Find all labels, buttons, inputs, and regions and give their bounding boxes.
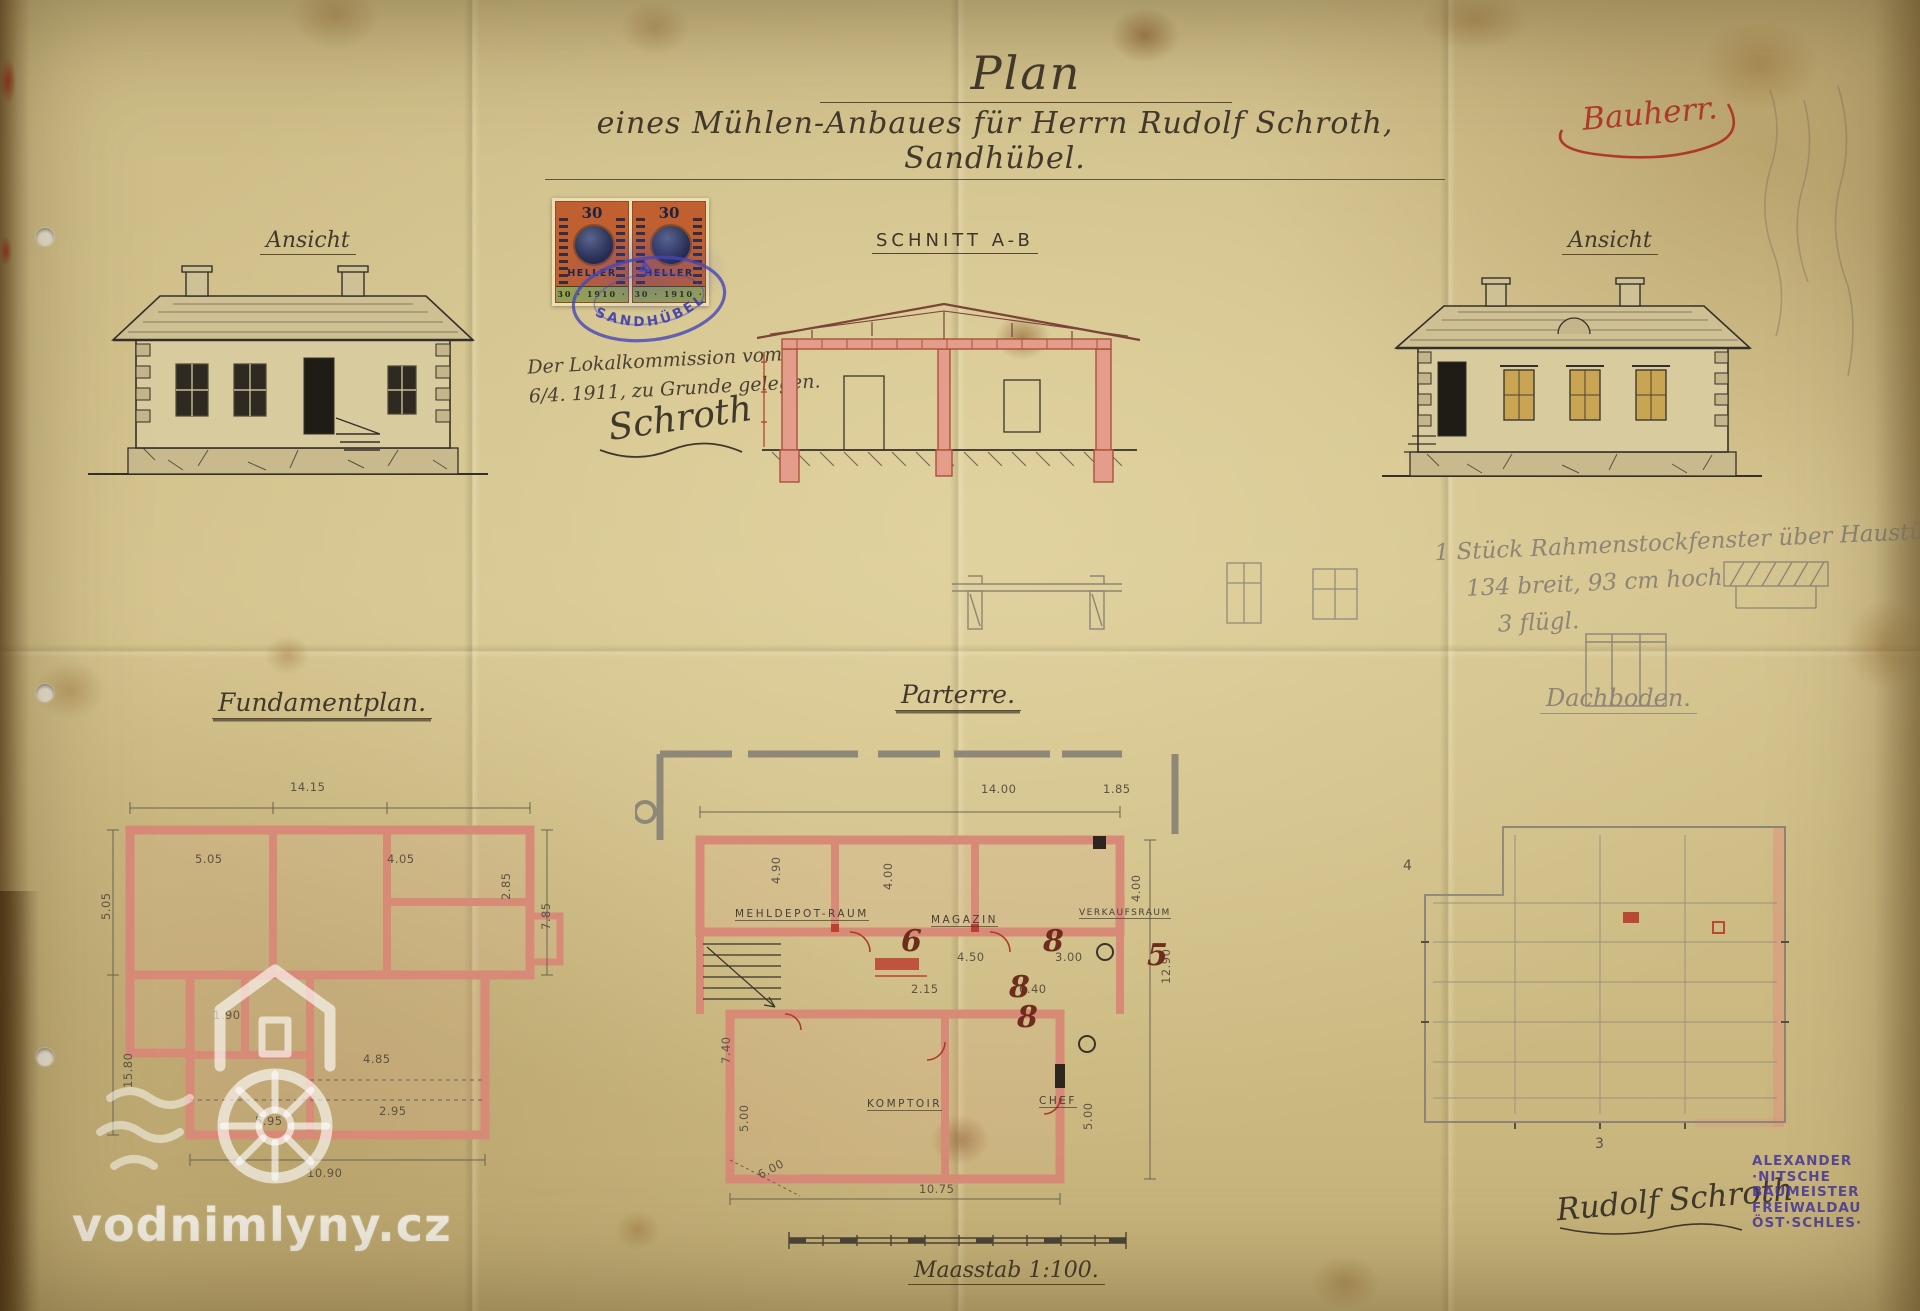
page-title: Plan (820, 46, 1232, 103)
maker-stamp-line: FREIWALDAU (1752, 1201, 1862, 1217)
dim-label: 5.00 (737, 1104, 751, 1132)
dim-label: 4.05 (387, 852, 415, 866)
watermark-text: vodnimlyny.cz (72, 1198, 452, 1252)
correction-figure: 6 (901, 924, 922, 959)
maker-stamp-line: ·NITSCHE (1752, 1170, 1862, 1186)
paper-stain (620, 0, 690, 55)
dim-label: 10.75 (919, 1182, 954, 1196)
postmark-sandhubel: SANDHÜBEL (559, 240, 740, 358)
punch-hole (36, 1048, 54, 1066)
room-label-verkauf: VERKAUFSRAUM (1079, 908, 1171, 919)
paper-stain (290, 0, 380, 50)
red-edge-mark (0, 58, 16, 104)
left-elevation-drawing (88, 262, 488, 492)
room-label-magazin: MAGAZIN (931, 914, 998, 927)
dim-label: 5.00 (1081, 1102, 1095, 1130)
dim-label: 4.00 (881, 862, 895, 890)
watermark-mill-logo-icon (90, 948, 400, 1198)
attic-plan-drawing: 4 3 (1395, 772, 1795, 1167)
room-label-chef: CHEF (1039, 1095, 1077, 1108)
dim-label: 2.15 (911, 982, 939, 996)
attic-mark-left: 4 (1403, 858, 1412, 874)
pencil-beam-sketch (950, 556, 1125, 641)
pencil-lintel-sketch (1720, 548, 1835, 613)
room-label-komptoir: KOMPTOIR (867, 1098, 942, 1111)
dim-label: 1.85 (1103, 782, 1131, 796)
label-attic: Dachboden. (1540, 684, 1697, 714)
maker-stamp-line: ALEXANDER (1752, 1154, 1862, 1170)
scale-bar (785, 1228, 1130, 1254)
ground-floor-plan-drawing: MEHLDEPOT-RAUM MAGAZIN VERKAUFSRAUM KOMP… (635, 712, 1195, 1217)
attic-mark-bottom: 3 (1595, 1136, 1604, 1152)
maker-stamp-line: ÖST·SCHLES· (1752, 1216, 1862, 1232)
dim-label: 7.40 (719, 1036, 733, 1064)
owner-signature-flourish (1556, 1218, 1746, 1240)
maker-stamp: ALEXANDER ·NITSCHE BAUMEISTER FREIWALDAU… (1752, 1154, 1862, 1232)
correction-figure: 5 (1147, 938, 1168, 973)
signature-flourish (596, 438, 746, 464)
attic-plan-svg (1395, 772, 1795, 1167)
dim-label: 7.85 (539, 902, 553, 930)
paper-stain (1310, 1255, 1380, 1310)
paper-stain (265, 635, 310, 675)
plan-sheet: Plan eines Mühlen-Anbaues für Herrn Rudo… (0, 0, 1920, 1311)
dim-label: 5.05 (99, 892, 113, 920)
margin-pencil-scribbles (1750, 80, 1870, 400)
dim-label: 4.50 (957, 950, 985, 964)
red-edge-mark (0, 236, 12, 266)
punch-hole (36, 228, 54, 246)
label-section-ab: SCHNITT A-B (872, 230, 1038, 254)
label-ground-floor: Parterre. (895, 680, 1021, 711)
dim-label: 5.05 (195, 852, 223, 866)
punch-hole (36, 684, 54, 702)
dim-label: 4.00 (1129, 874, 1143, 902)
paper-stain (1420, 0, 1530, 50)
page-subtitle: eines Mühlen-Anbaues für Herrn Rudolf Sc… (545, 106, 1445, 180)
label-elevation-right: Ansicht (1562, 228, 1658, 255)
scale-label: Maasstab 1:100. (908, 1258, 1105, 1285)
dim-label: 14.15 (290, 780, 325, 794)
pencil-post-sketch (1215, 545, 1385, 645)
dim-label: 4.90 (769, 856, 783, 884)
label-foundation-plan: Fundamentplan. (212, 688, 432, 719)
binding-edge-dark (0, 891, 40, 1311)
maker-stamp-line: BAUMEISTER (1752, 1185, 1862, 1201)
pencil-note-block: 1 Stück Rahmenstockfenster über Haustüre… (1434, 513, 1920, 646)
label-elevation-left: Ansicht (260, 228, 356, 255)
right-elevation-drawing (1382, 276, 1762, 494)
dim-label: 14.00 (981, 782, 1016, 796)
section-drawing (752, 292, 1147, 507)
room-label-mehldepot: MEHLDEPOT-RAUM (735, 908, 869, 921)
dim-label: 2.85 (499, 872, 513, 900)
correction-figure: 8 (1043, 924, 1064, 959)
correction-figure: 8 (1017, 1000, 1038, 1035)
